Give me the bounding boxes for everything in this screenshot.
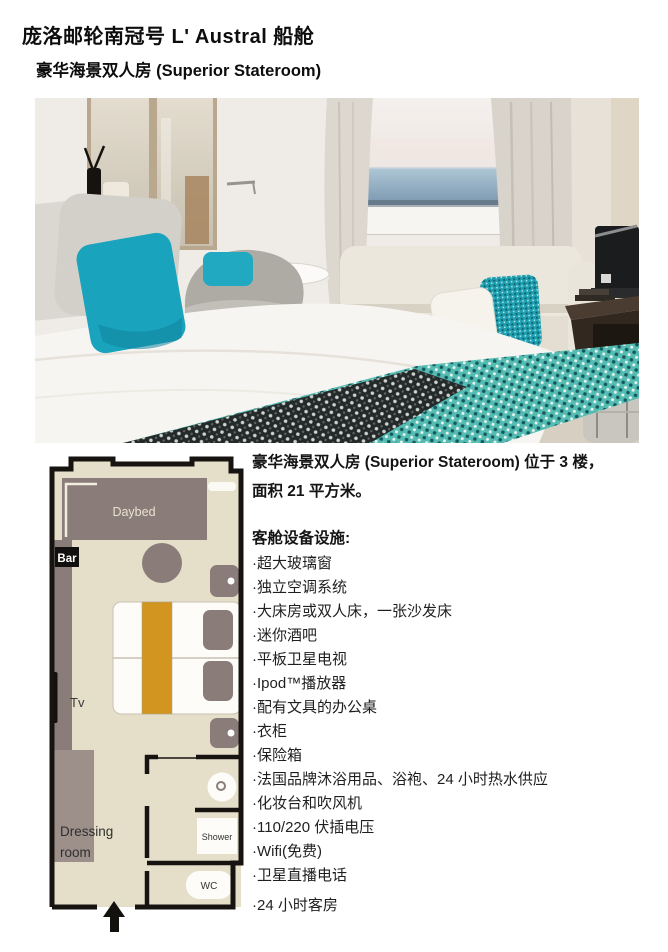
- daybed-label: Daybed: [112, 505, 155, 519]
- room-details: 豪华海景双人房 (Superior Stateroom) 位于 3 楼， 面积 …: [252, 448, 664, 918]
- shower-label: Shower: [202, 832, 233, 842]
- stateroom-photo-art: [35, 98, 639, 443]
- tv-label: Tv: [70, 695, 85, 710]
- pillow-plan: [203, 661, 233, 701]
- wc-label: WC: [201, 881, 218, 892]
- nightstand-top: [210, 565, 239, 597]
- armchair-teal-pillow: [203, 252, 253, 286]
- stateroom-photo: [35, 98, 639, 443]
- amenity-item: ·迷你酒吧: [252, 624, 664, 648]
- amenity-item: ·配有文具的办公桌: [252, 696, 664, 720]
- brochure-page: 庞洛邮轮南冠号 L' Austral 船舱 豪华海景双人房 (Superior …: [0, 0, 668, 952]
- amenity-item: ·110/220 伏插电压: [252, 816, 664, 840]
- amenity-item: ·衣柜: [252, 720, 664, 744]
- amenities-list: ·超大玻璃窗·独立空调系统·大床房或双人床，一张沙发床·迷你酒吧·平板卫星电视·…: [252, 552, 664, 918]
- round-table-plan: [142, 543, 182, 583]
- amenity-item: ·平板卫星电视: [252, 648, 664, 672]
- page-title: 庞洛邮轮南冠号 L' Austral 船舱: [22, 20, 314, 49]
- pillow-plan: [203, 610, 233, 650]
- amenity-item: ·卫星直播电话: [252, 864, 664, 888]
- amenity-item: ·Wifi(免费): [252, 840, 664, 864]
- amenity-item: ·保险箱: [252, 744, 664, 768]
- floorplan-diagram: Daybed Bar Tv Dressing room: [40, 455, 252, 937]
- amenity-item: ·Ipod™播放器: [252, 672, 664, 696]
- intro-line-2: 面积 21 平方米。: [252, 477, 664, 506]
- amenity-item: ·化妆台和吹风机: [252, 792, 664, 816]
- dressing-room-label-line1: Dressing: [60, 824, 113, 839]
- reading-lamp: [227, 182, 255, 184]
- bed-runner-plan: [142, 602, 172, 714]
- amenity-item: ·独立空调系统: [252, 576, 664, 600]
- amenity-item: ·大床房或双人床，一张沙发床: [252, 600, 664, 624]
- room-type-subtitle: 豪华海景双人房 (Superior Stateroom): [36, 57, 321, 81]
- coffee-machine: [595, 226, 639, 296]
- floorplan-art: Daybed Bar Tv Dressing room: [40, 455, 252, 937]
- amenities-heading: 客舱设备设施:: [252, 526, 664, 552]
- amenity-item: ·超大玻璃窗: [252, 552, 664, 576]
- bar-label: Bar: [57, 553, 77, 565]
- nightstand-bottom: [210, 718, 239, 748]
- dressing-room-label-line2: room: [60, 845, 91, 860]
- amenity-item: ·24 小时客房: [252, 894, 664, 918]
- intro-line-1: 豪华海景双人房 (Superior Stateroom) 位于 3 楼，: [252, 448, 664, 477]
- window-shelf: [208, 482, 236, 491]
- sea-view-window: [359, 98, 509, 234]
- amenity-item: ·法国品牌沐浴用品、浴袍、24 小时热水供应: [252, 768, 664, 792]
